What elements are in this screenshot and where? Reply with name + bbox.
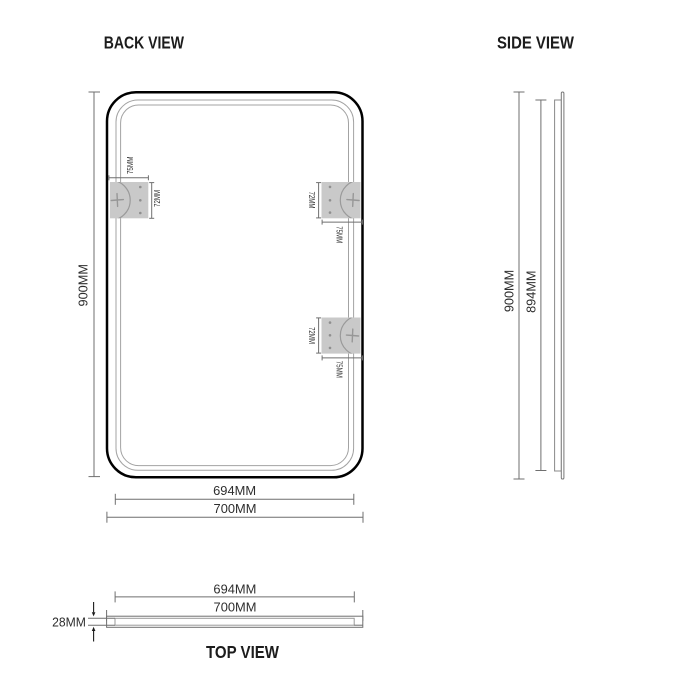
svg-text:75MM: 75MM: [334, 226, 343, 243]
svg-text:72MM: 72MM: [307, 327, 316, 344]
svg-text:72MM: 72MM: [307, 191, 316, 208]
svg-text:694MM: 694MM: [213, 582, 256, 596]
svg-text:TOP VIEW: TOP VIEW: [206, 642, 280, 662]
svg-text:75MM: 75MM: [126, 156, 135, 174]
svg-text:SIDE VIEW: SIDE VIEW: [497, 33, 575, 53]
svg-text:894MM: 894MM: [524, 271, 538, 313]
svg-text:700MM: 700MM: [214, 502, 257, 516]
svg-text:75MM: 75MM: [334, 361, 343, 378]
svg-text:694MM: 694MM: [213, 484, 256, 498]
svg-text:BACK VIEW: BACK VIEW: [104, 33, 185, 53]
svg-text:900MM: 900MM: [76, 264, 90, 306]
svg-text:72MM: 72MM: [153, 190, 162, 207]
svg-text:700MM: 700MM: [214, 601, 257, 615]
svg-text:900MM: 900MM: [503, 270, 517, 312]
svg-text:28MM: 28MM: [52, 616, 86, 630]
